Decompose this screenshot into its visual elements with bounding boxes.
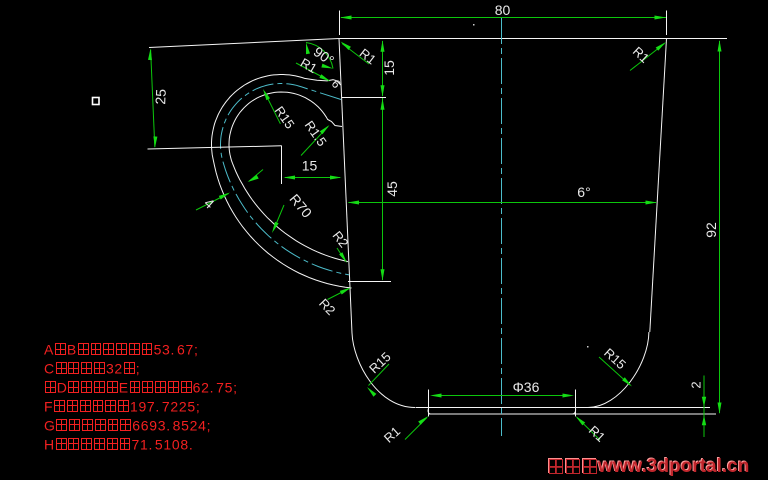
svg-text:R1: R1	[586, 423, 608, 445]
svg-text:80: 80	[495, 2, 511, 18]
svg-text:R1: R1	[381, 424, 403, 446]
svg-text:R1: R1	[630, 44, 652, 66]
svg-text:4: 4	[201, 195, 218, 212]
svg-text:R1.5: R1.5	[302, 118, 330, 149]
svg-text:6°: 6°	[577, 184, 590, 200]
svg-text:R70: R70	[286, 191, 315, 221]
svg-text:R15: R15	[366, 349, 394, 376]
svg-text:25: 25	[152, 88, 169, 104]
svg-text:45: 45	[384, 181, 400, 197]
svg-text:15: 15	[302, 158, 318, 174]
svg-text:92: 92	[703, 222, 719, 238]
svg-text:R15: R15	[272, 103, 298, 131]
svg-text:Φ36: Φ36	[513, 379, 540, 395]
svg-text:R2: R2	[316, 296, 338, 318]
svg-text:15: 15	[381, 60, 397, 76]
svg-text:R15: R15	[601, 345, 629, 372]
svg-text:2: 2	[689, 381, 704, 388]
svg-text:R1: R1	[357, 45, 379, 67]
